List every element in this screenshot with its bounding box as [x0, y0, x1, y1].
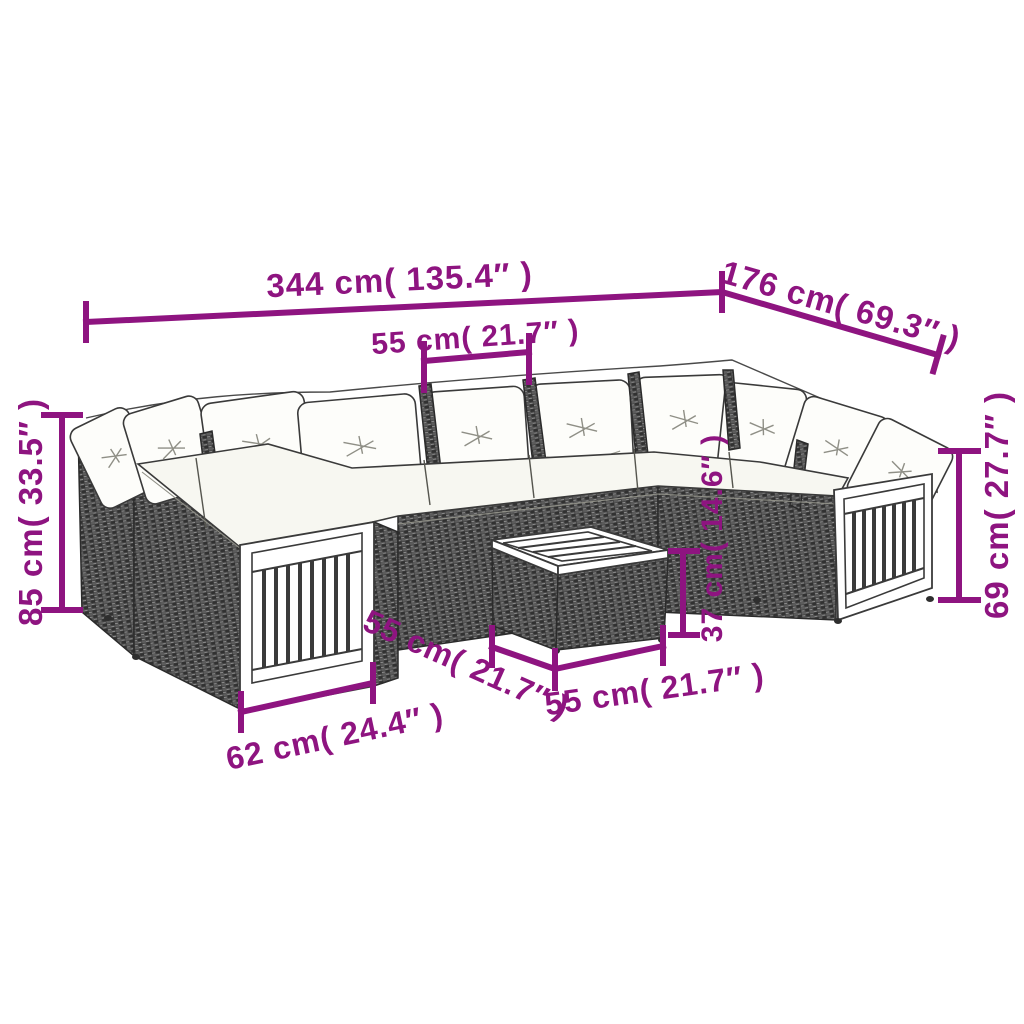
- right-arm-wood-panel: [834, 474, 932, 620]
- dimension-diagram: 344 cm( 135.4″ ) 176 cm( 69.3″ ) 55 cm( …: [0, 0, 1024, 1024]
- foot: [834, 618, 842, 624]
- dim-label-back-height: 85 cm( 33.5″ ): [12, 398, 49, 626]
- dim-back-height: 85 cm( 33.5″ ): [12, 398, 80, 626]
- dim-label-overall-depth: 176 cm( 69.3″ ): [717, 253, 965, 357]
- dim-label-arm-height: 69 cm( 27.7″ ): [978, 391, 1015, 619]
- dim-label-overall-width: 344 cm( 135.4″ ): [265, 255, 533, 305]
- dim-overall-depth: 176 cm( 69.3″ ): [717, 253, 965, 371]
- dim-label-table-height: 37 cm( 14.6″ ): [696, 434, 729, 642]
- dim-arm-height: 69 cm( 27.7″ ): [941, 391, 1015, 619]
- left-panel-frame-outer: [240, 522, 374, 712]
- left-arm-wood-panel: [240, 522, 374, 712]
- dim-line: [555, 646, 663, 669]
- foot: [104, 615, 112, 621]
- sofa-set-illustration: 344 cm( 135.4″ ) 176 cm( 69.3″ ) 55 cm( …: [0, 0, 1024, 1024]
- foot: [926, 596, 934, 602]
- foot: [753, 597, 761, 603]
- coffee-table: [492, 527, 668, 650]
- foot: [132, 654, 140, 660]
